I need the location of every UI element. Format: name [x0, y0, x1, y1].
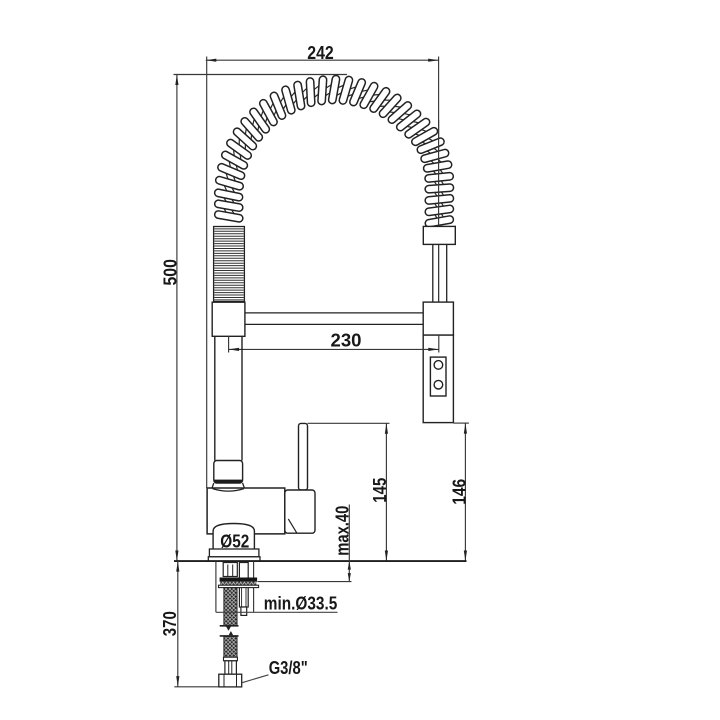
svg-text:145: 145 — [370, 478, 390, 503]
svg-text:370: 370 — [160, 611, 180, 636]
svg-text:500: 500 — [160, 259, 180, 286]
svg-text:230: 230 — [331, 331, 362, 351]
svg-text:min.Ø33.5: min.Ø33.5 — [264, 593, 338, 613]
svg-text:242: 242 — [307, 43, 334, 63]
svg-text:146: 146 — [449, 479, 469, 505]
svg-text:G3/8": G3/8" — [269, 658, 308, 678]
svg-text:max.40: max.40 — [333, 506, 353, 556]
